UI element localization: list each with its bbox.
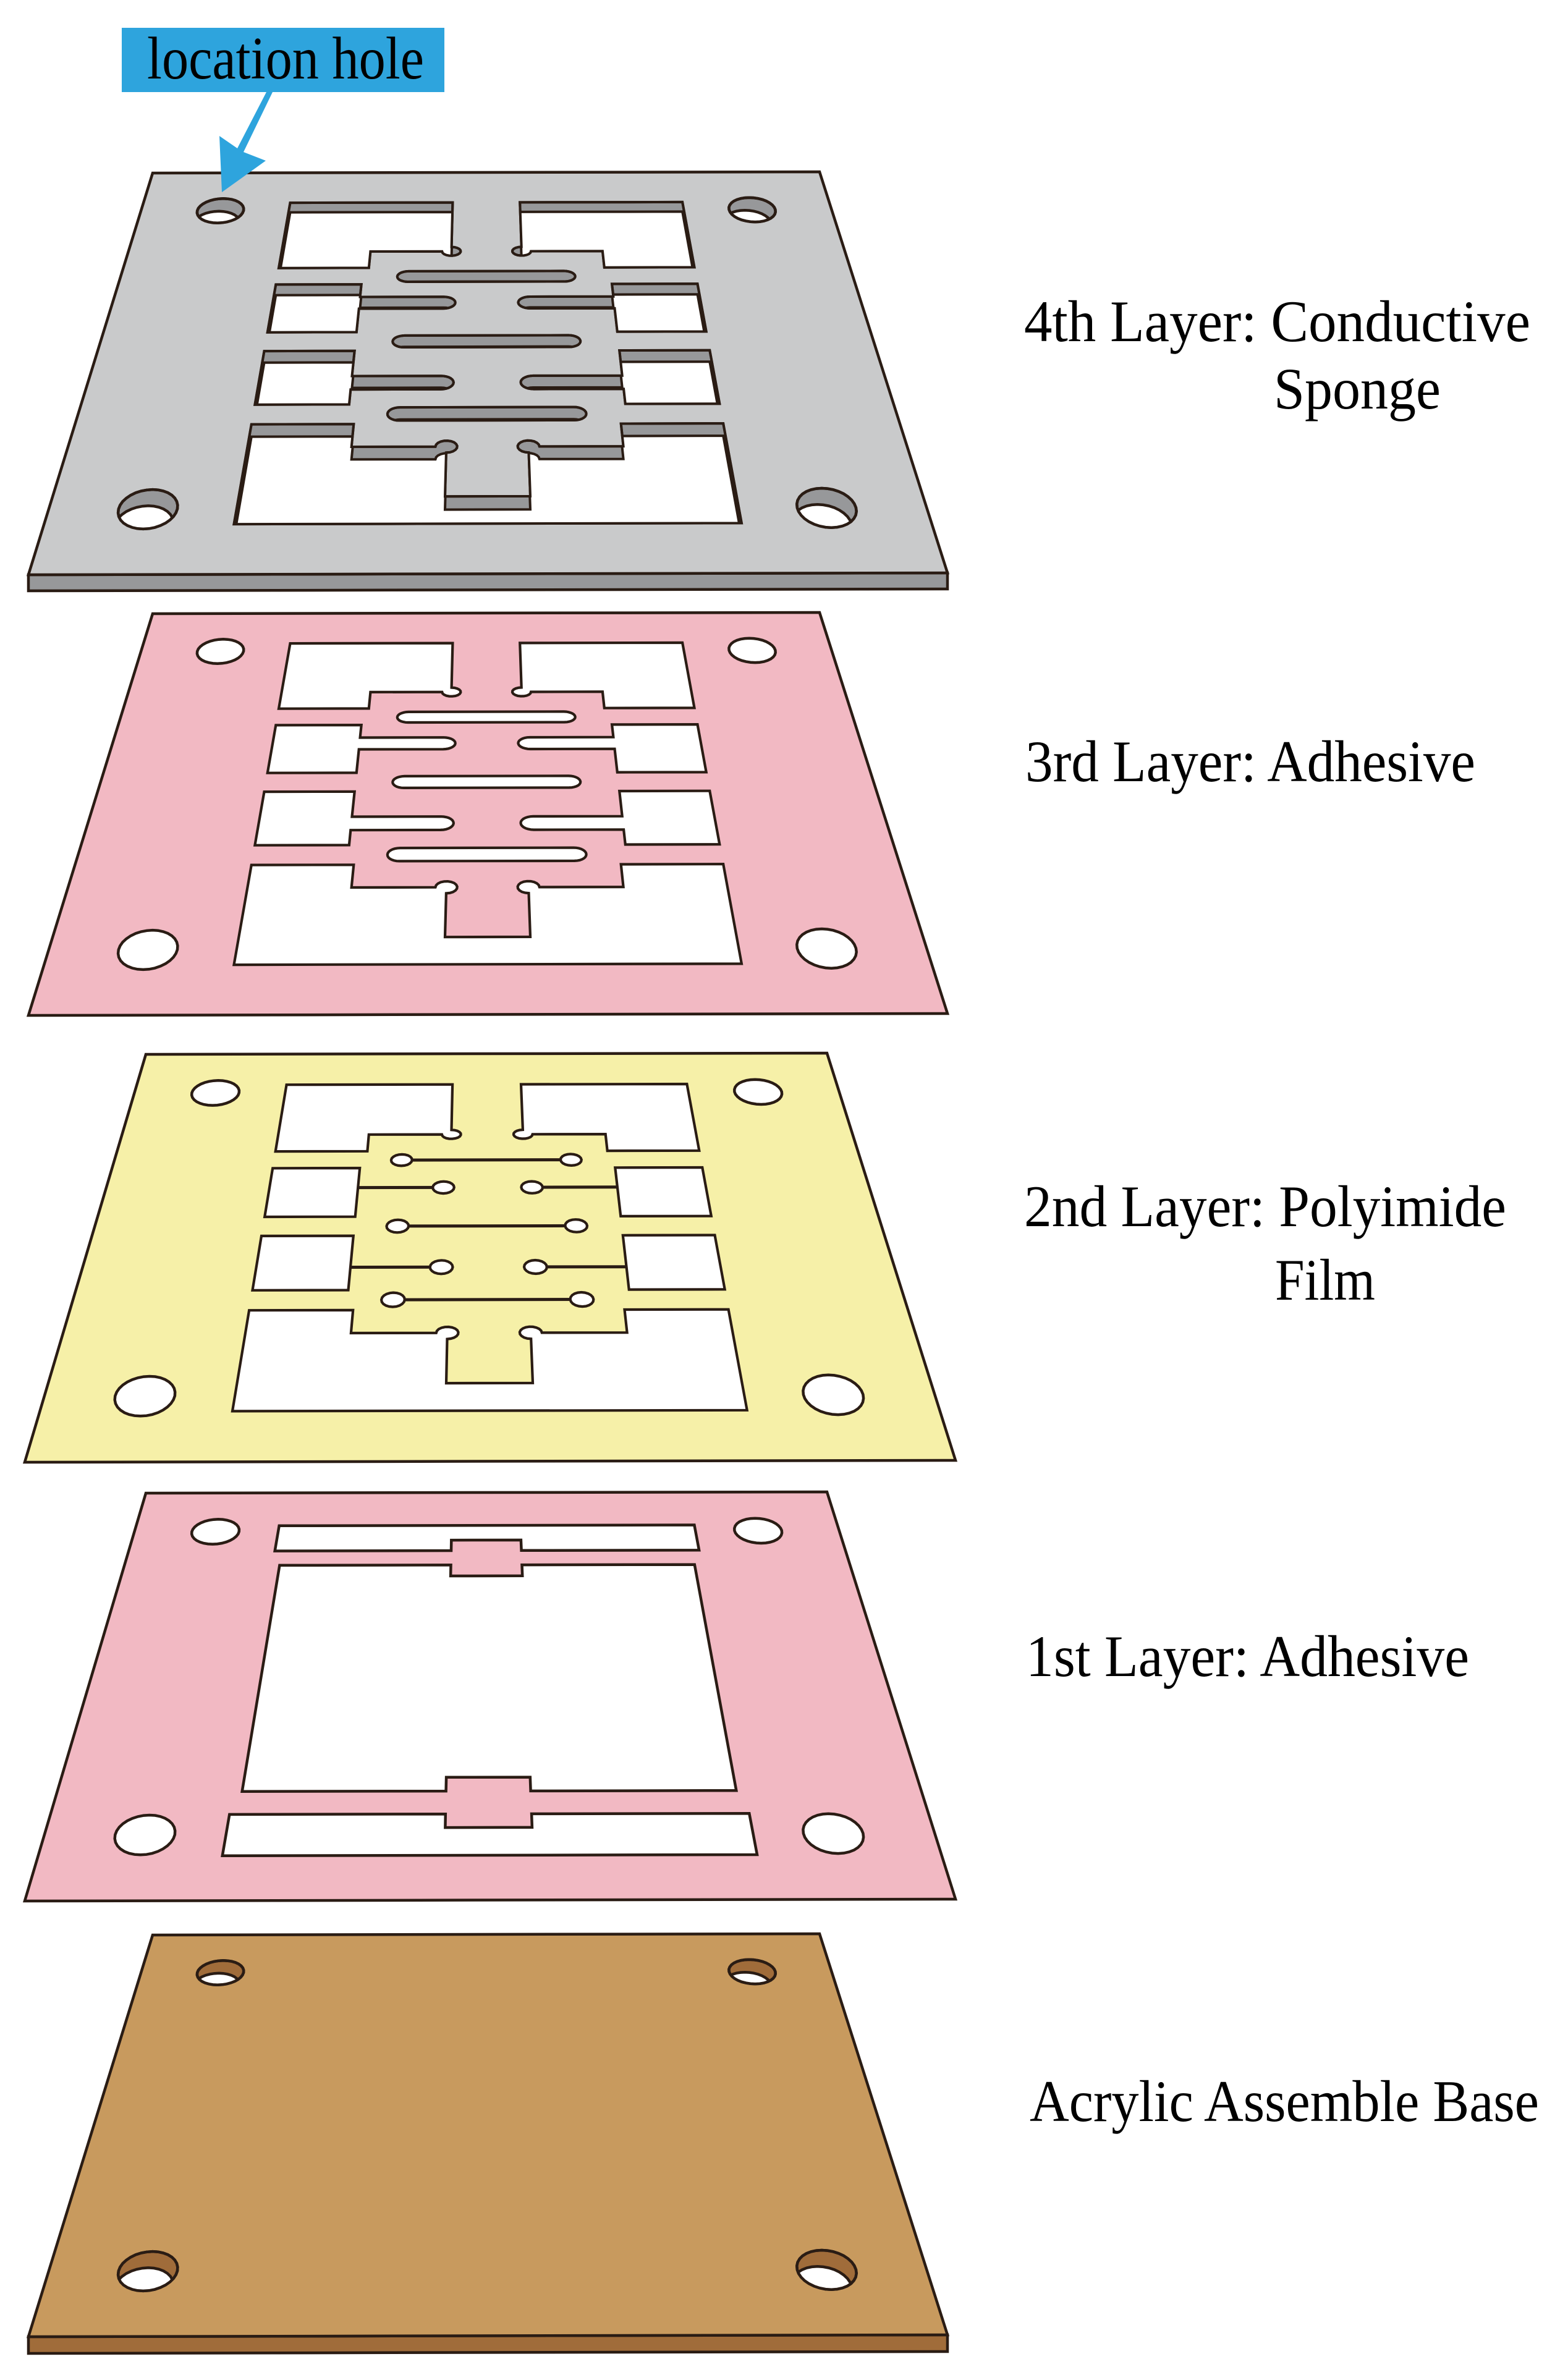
svg-text:Acrylic Assemble Base: Acrylic Assemble Base (1030, 2068, 1539, 2134)
svg-text:3rd Layer: Adhesive: 3rd Layer: Adhesive (1025, 729, 1475, 794)
svg-text:location hole: location hole (147, 25, 424, 91)
svg-text:4th Layer: Conductive: 4th Layer: Conductive (1024, 289, 1530, 354)
svg-text:Film: Film (1275, 1247, 1375, 1313)
svg-text:2nd Layer: Polyimide: 2nd Layer: Polyimide (1024, 1174, 1506, 1239)
svg-text:1st Layer: Adhesive: 1st Layer: Adhesive (1026, 1624, 1469, 1689)
svg-text:Sponge: Sponge (1274, 356, 1441, 421)
